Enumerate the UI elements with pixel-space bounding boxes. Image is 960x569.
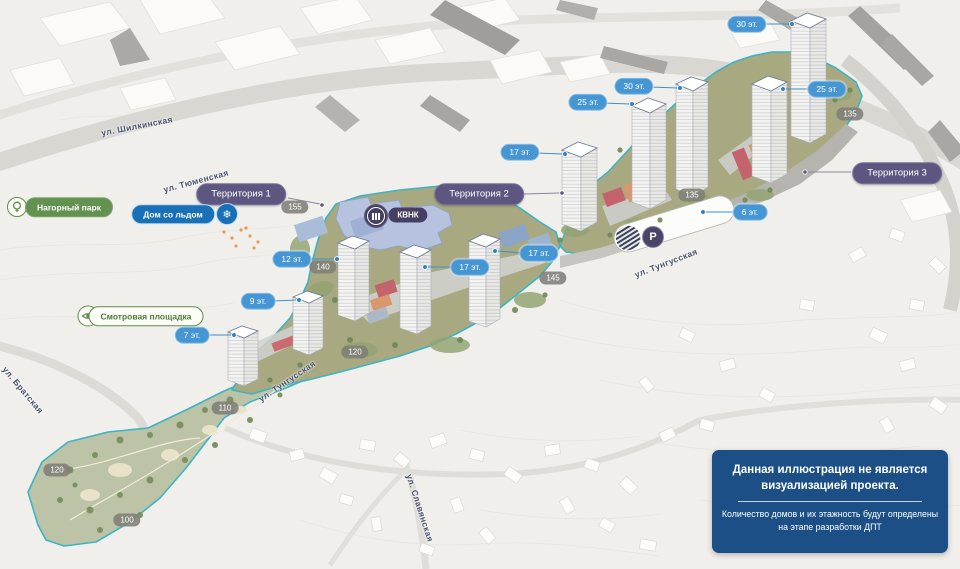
elevation-marker-135-a: 135 <box>678 189 705 202</box>
disclaimer-title: Данная иллюстрация не является визуализа… <box>720 463 940 494</box>
tower-30et-i <box>791 13 826 143</box>
floor-badge-12et: 12 эт. <box>272 251 311 268</box>
tower-30et-h <box>676 77 708 196</box>
parking-glyph: P <box>649 231 656 243</box>
nagorny-park-label: Нагорный парк <box>25 197 113 217</box>
tree-icon <box>7 197 27 217</box>
tower-25et-j <box>752 76 787 183</box>
territory-3-label: Территория 3 <box>852 162 942 184</box>
floor-badge-17et-b: 17 эт. <box>519 245 558 262</box>
floor-badge-6et: 6 эт. <box>733 204 768 221</box>
site-plan-illustration: Территория 1 Территория 2 Территория 3 3… <box>0 0 960 569</box>
ice-house-label: Дом со льдом <box>131 204 215 224</box>
floor-badge-9et: 9 эт. <box>241 293 276 310</box>
disclaimer-body: Количество домов и их этажность будут оп… <box>720 508 940 534</box>
floor-badge-30et-a: 30 эт. <box>727 16 766 33</box>
floor-badge-25et-a: 25 эт. <box>807 81 846 98</box>
floor-badge-7et: 7 эт. <box>175 327 210 344</box>
tower-17et-b <box>400 245 431 334</box>
viewpoint-label: Смотровая площадка <box>89 306 204 326</box>
elevation-marker-100: 100 <box>113 514 140 527</box>
floor-badge-17et-c: 17 эт. <box>450 259 489 276</box>
snowflake-glyph: ❄ <box>222 208 231 221</box>
floor-badge-30et-b: 30 эт. <box>614 78 653 95</box>
elevation-marker-110: 110 <box>212 402 239 415</box>
floor-badge-17et-a: 17 эт. <box>500 144 539 161</box>
kvnk-icon <box>364 204 388 228</box>
parking-icon: P <box>642 226 664 248</box>
disclaimer-divider <box>738 501 923 502</box>
disclaimer-card: Данная иллюстрация не является визуализа… <box>712 450 948 553</box>
elevation-marker-140: 140 <box>309 261 336 274</box>
tower-25et-g <box>632 98 666 209</box>
territory-1-label: Территория 1 <box>196 183 286 205</box>
kvnk-label: КВНК <box>388 208 427 223</box>
elevation-marker-120-b: 120 <box>43 464 70 477</box>
ice-icon: ❄ <box>216 203 238 225</box>
elevation-marker-120-a: 120 <box>341 346 368 359</box>
elevation-marker-135-b: 135 <box>836 108 863 121</box>
territory-2-label: Территория 2 <box>434 183 524 205</box>
floor-badge-25et-b: 25 эт. <box>568 94 607 111</box>
tower-12et <box>338 236 369 321</box>
tower-17et-c <box>469 234 500 327</box>
elevation-marker-145: 145 <box>539 272 566 285</box>
elevation-marker-155: 155 <box>281 201 308 214</box>
